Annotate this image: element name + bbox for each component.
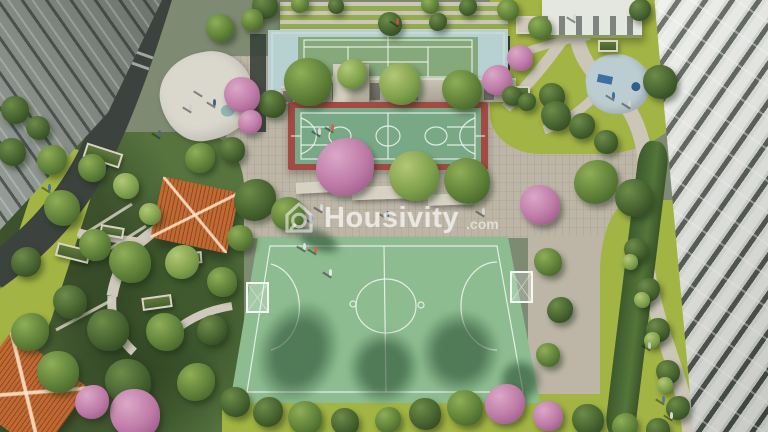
- housivity-watermark: Housivity .com: [281, 195, 499, 237]
- football-field: [225, 232, 545, 407]
- goal-right: [511, 272, 532, 302]
- watermark-brand: Housivity: [324, 204, 459, 237]
- terraced-seating: [280, 2, 508, 32]
- goal-left: [247, 283, 268, 312]
- utility-shed: [333, 64, 369, 104]
- basketball-court: [288, 102, 488, 170]
- house-magnifier-icon: [281, 199, 317, 237]
- watermark-tld: .com: [466, 217, 499, 237]
- court-fence: [250, 34, 266, 132]
- clubhouse-building: [542, 0, 642, 38]
- aerial-site-render: Housivity .com: [0, 0, 768, 432]
